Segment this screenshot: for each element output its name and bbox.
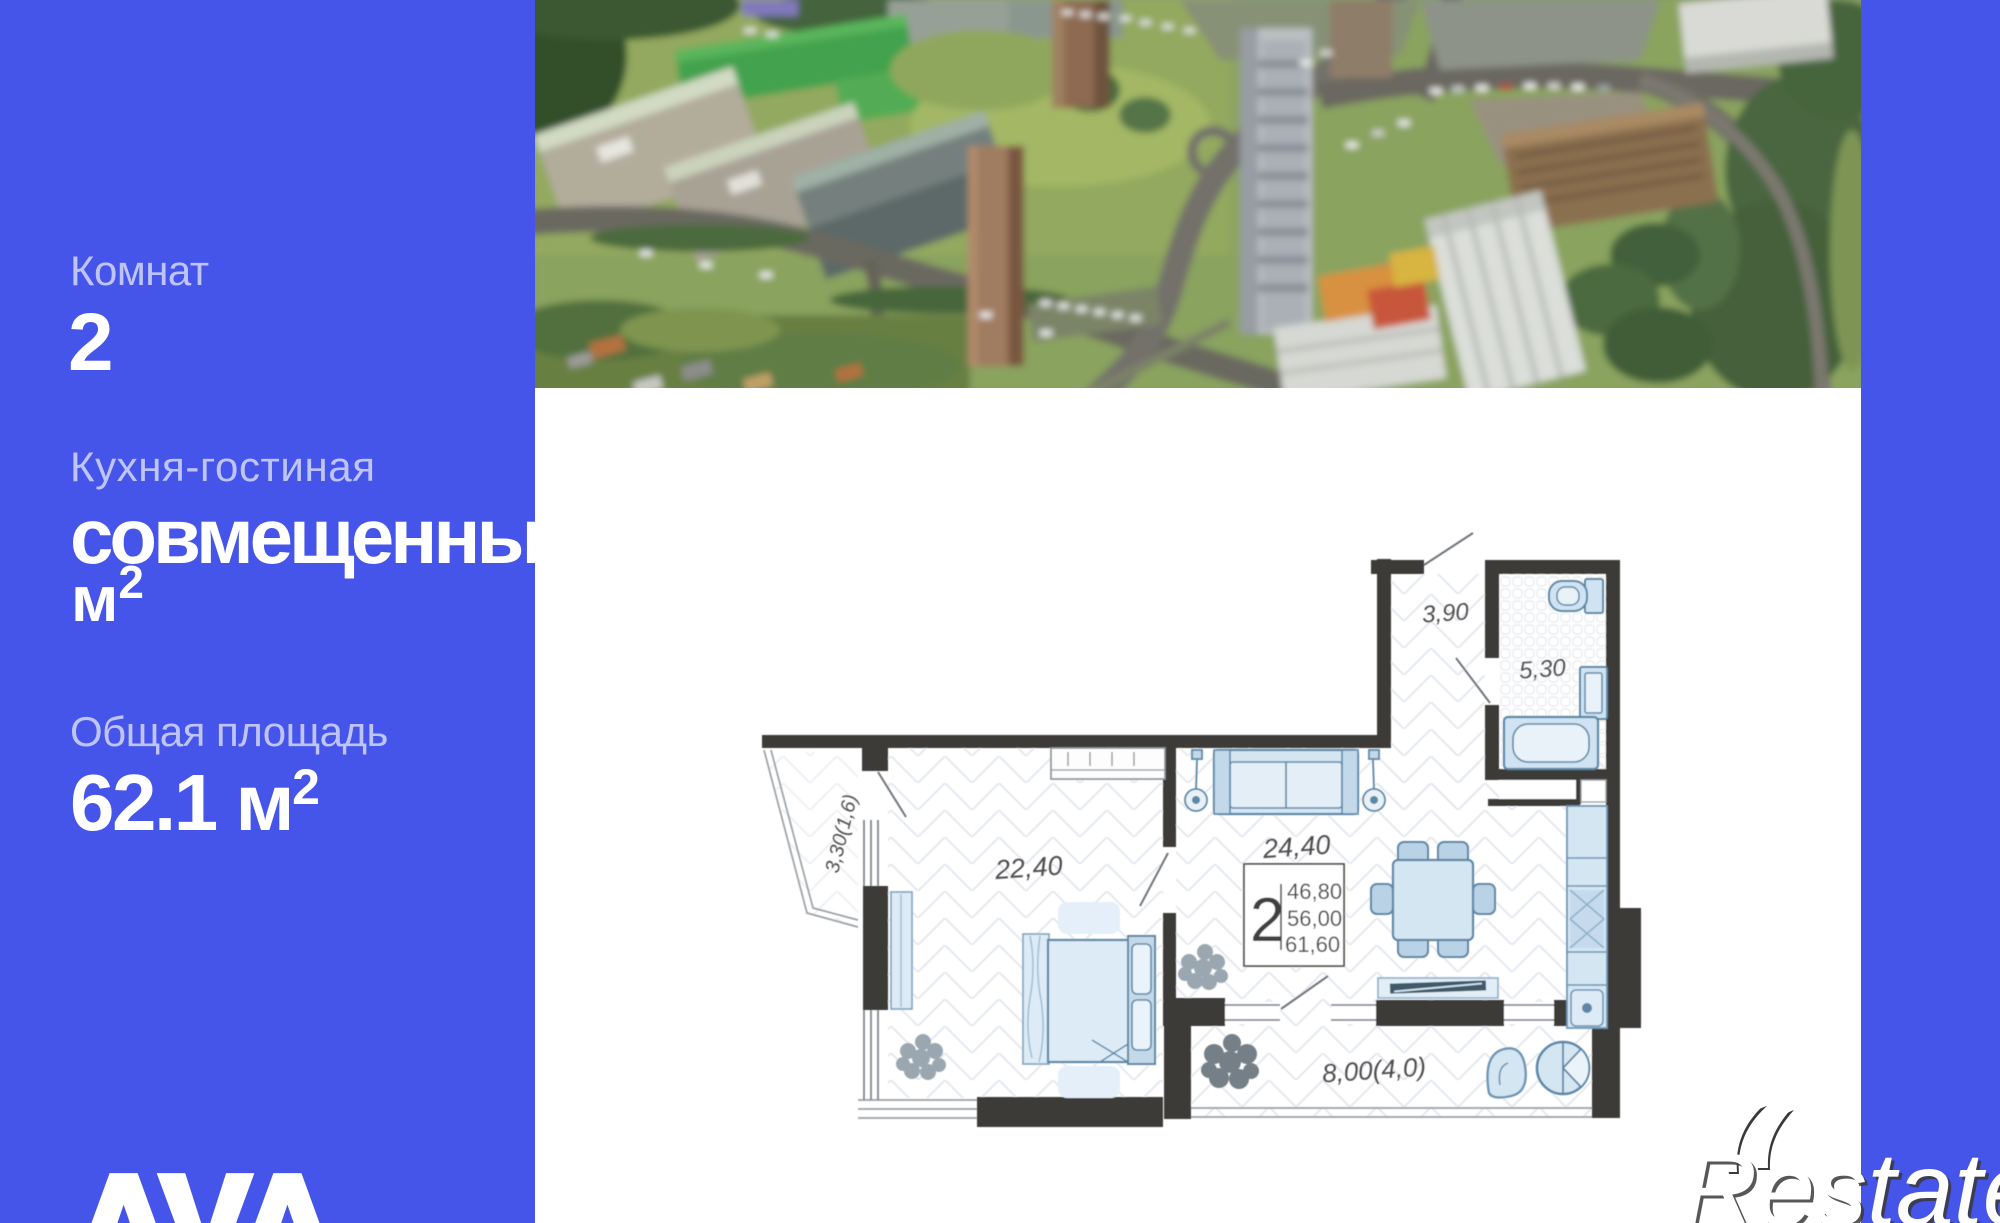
svg-text:22,40: 22,40 (993, 850, 1064, 885)
svg-text:46,80: 46,80 (1287, 879, 1342, 904)
svg-text:Общая площадь: Общая площадь (70, 708, 388, 755)
svg-text:62.1 м2: 62.1 м2 (70, 758, 318, 847)
svg-text:Restate: Restate (1682, 1132, 2000, 1223)
svg-text:5,30: 5,30 (1518, 654, 1567, 684)
svg-text:56,00: 56,00 (1287, 906, 1342, 931)
svg-text:совмещенный: совмещенный (70, 492, 583, 580)
svg-text:61,60: 61,60 (1285, 932, 1340, 957)
svg-text:2: 2 (1250, 886, 1284, 955)
svg-text:Кухня-гостиная: Кухня-гостиная (70, 443, 376, 490)
svg-text:3,90: 3,90 (1421, 598, 1470, 628)
svg-text:24,40: 24,40 (1261, 829, 1332, 864)
svg-text:Комнат: Комнат (70, 247, 209, 294)
svg-text:AVA: AVA (76, 1149, 335, 1223)
svg-text:2: 2 (68, 297, 114, 388)
